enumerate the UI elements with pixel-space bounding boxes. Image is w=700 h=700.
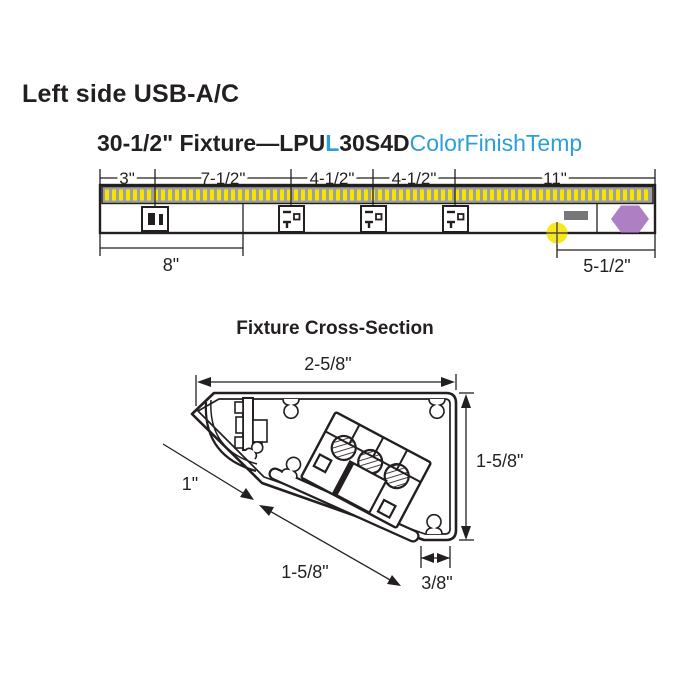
fixture-model-title: 30-1/2" Fixture—LPUL30S4DColorFinishTemp [97,130,582,157]
dim-label-5-5in: 5-1/2" [583,256,630,276]
arrow-diag-up [259,505,274,516]
dim-label-right-1-625: 1-5/8" [476,451,523,471]
led-chip [236,417,243,433]
arrow-diag-down [387,575,401,586]
dim-label-1in: 1" [182,474,198,494]
fixture-title-mid: 30S4D [339,130,409,156]
fixture-cross-section-diagram: 2-5/8" 1-5/8" 1" 1-5/8" 3/8" [0,340,700,630]
usb-outlet-icon [142,207,168,231]
fixture-title-highlight: L [325,130,339,156]
led-bracket [253,420,267,442]
usb-c-port [159,214,163,225]
dim-label-2-625: 2-5/8" [304,354,351,374]
page-title: Left side USB-A/C [22,80,239,109]
power-outlet-icon-1 [279,206,304,232]
fixture-elevation-diagram: 3" 7-1/2" 4-1/2" 4-1/2" 11" [0,160,700,305]
bottom-left-dimension: 8" [100,233,243,275]
led-chip [235,437,243,448]
arrow-left [197,377,211,387]
led-strip [102,187,653,204]
power-outlet-icon-3 [443,206,468,232]
screw-boss [283,399,299,418]
arrow-down [461,526,471,540]
arrow-left [421,553,434,563]
fixture-title-prefix: 30-1/2" Fixture—LPU [97,130,325,156]
dim-label-8in: 8" [163,255,179,275]
dim-label-diag-1-625: 1-5/8" [281,562,328,582]
power-outlet-icon-2 [361,206,386,232]
led-chip [235,402,243,413]
screw-boss [426,515,442,534]
arrow-up [461,394,471,408]
arrow-diag [240,488,254,500]
screw-boss [429,399,445,418]
dim-label-0-375: 3/8" [421,573,452,593]
arrow-right [437,553,450,563]
usb-a-port [148,213,155,225]
bottom-right-dimension: 5-1/2" [557,233,655,276]
cs-dim-bottom: 3/8" [421,546,453,593]
cross-section-title: Fixture Cross-Section [135,318,535,340]
fixture-title-suffix: ColorFinishTemp [410,130,583,156]
wire-lead-icon [564,211,588,220]
cs-dim-right: 1-5/8" [459,393,523,540]
arrow-right [441,377,455,387]
